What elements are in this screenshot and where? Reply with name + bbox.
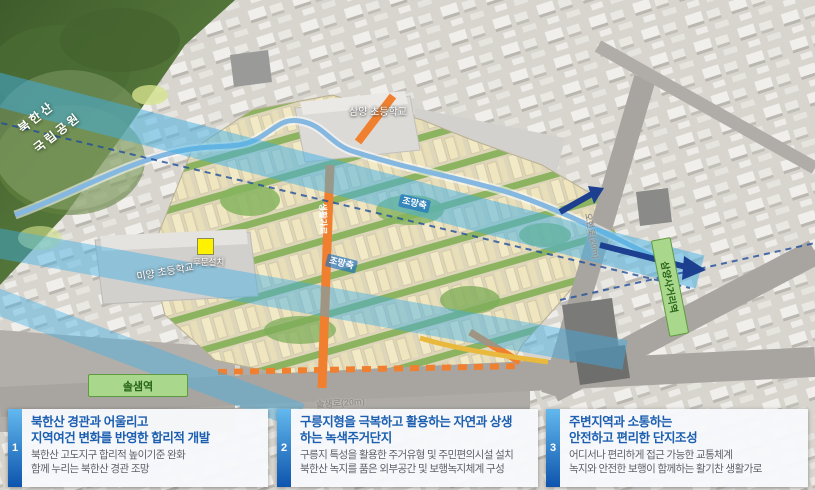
panel-3-title-line2: 안전하고 편리한 단지조성 <box>569 430 762 446</box>
panel-2-title-line1: 구릉지형을 극복하고 활용하는 자연과 상생 <box>300 414 513 430</box>
rear-gate-marker <box>197 238 214 255</box>
panel-3-title-line1: 주변지역과 소통하는 <box>569 414 762 430</box>
panel-1-body-line1: 북한산 고도지구 합리적 높이기준 완화 <box>31 449 210 463</box>
panel-1-title-line2: 지역여건 변화를 반영한 합리적 개발 <box>31 430 210 446</box>
panel-3-body-line1: 어디서나 편리하게 접근 가능한 교통체계 <box>569 449 762 463</box>
panel-2-body-line1: 구릉지 특성을 활용한 주거유형 및 주민편의시설 설치 <box>300 449 513 463</box>
panel-3-number: 3 <box>546 409 560 487</box>
panel-2-number: 2 <box>277 409 291 487</box>
panel-1-body: 북한산 고도지구 합리적 높이기준 완화 함께 누리는 북한산 경관 조망 <box>31 449 210 477</box>
panel-3-content: 주변지역과 소통하는 안전하고 편리한 단지조성 어디서나 편리하게 접근 가능… <box>560 409 768 487</box>
panel-2-content: 구릉지형을 극복하고 활용하는 자연과 상생 하는 녹색주거단지 구릉지 특성을… <box>291 409 519 487</box>
panel-2-title-line2: 하는 녹색주거단지 <box>300 430 513 446</box>
panel-1-title-line1: 북한산 경관과 어울리고 <box>31 414 210 430</box>
panel-1-title: 북한산 경관과 어울리고 지역여건 변화를 반영한 합리적 개발 <box>31 414 210 446</box>
summary-panel-3: 3 주변지역과 소통하는 안전하고 편리한 단지조성 어디서나 편리하게 접근 … <box>546 409 808 487</box>
planning-map-view: 북한산 국립공원 삼양 초등학교 미양 초등학교 후문설치 솔샘역 삼양사거리역… <box>0 0 815 490</box>
station-solsaem: 솔샘역 <box>88 374 188 397</box>
panel-3-body: 어디서나 편리하게 접근 가능한 교통체계 녹지와 안전한 보행이 함께하는 활… <box>569 449 762 477</box>
panel-3-body-line2: 녹지와 안전한 보행이 함께하는 활기찬 생활가로 <box>569 463 762 477</box>
panel-2-body-line2: 북한산 녹지를 품은 외부공간 및 보행녹지체계 구성 <box>300 463 513 477</box>
panel-2-title: 구릉지형을 극복하고 활용하는 자연과 상생 하는 녹색주거단지 <box>300 414 513 446</box>
summary-panel-2: 2 구릉지형을 극복하고 활용하는 자연과 상생 하는 녹색주거단지 구릉지 특… <box>277 409 538 487</box>
panel-2-body: 구릉지 특성을 활용한 주거유형 및 주민편의시설 설치 북한산 녹지를 품은 … <box>300 449 513 477</box>
panel-1-body-line2: 함께 누리는 북한산 경관 조망 <box>31 463 210 477</box>
panel-1-content: 북한산 경관과 어울리고 지역여건 변화를 반영한 합리적 개발 북한산 고도지… <box>22 409 216 487</box>
panel-3-title: 주변지역과 소통하는 안전하고 편리한 단지조성 <box>569 414 762 446</box>
summary-panel-1: 1 북한산 경관과 어울리고 지역여건 변화를 반영한 합리적 개발 북한산 고… <box>8 409 268 487</box>
panel-1-number: 1 <box>8 409 22 487</box>
label-life-street: 생활가로 <box>317 203 330 234</box>
